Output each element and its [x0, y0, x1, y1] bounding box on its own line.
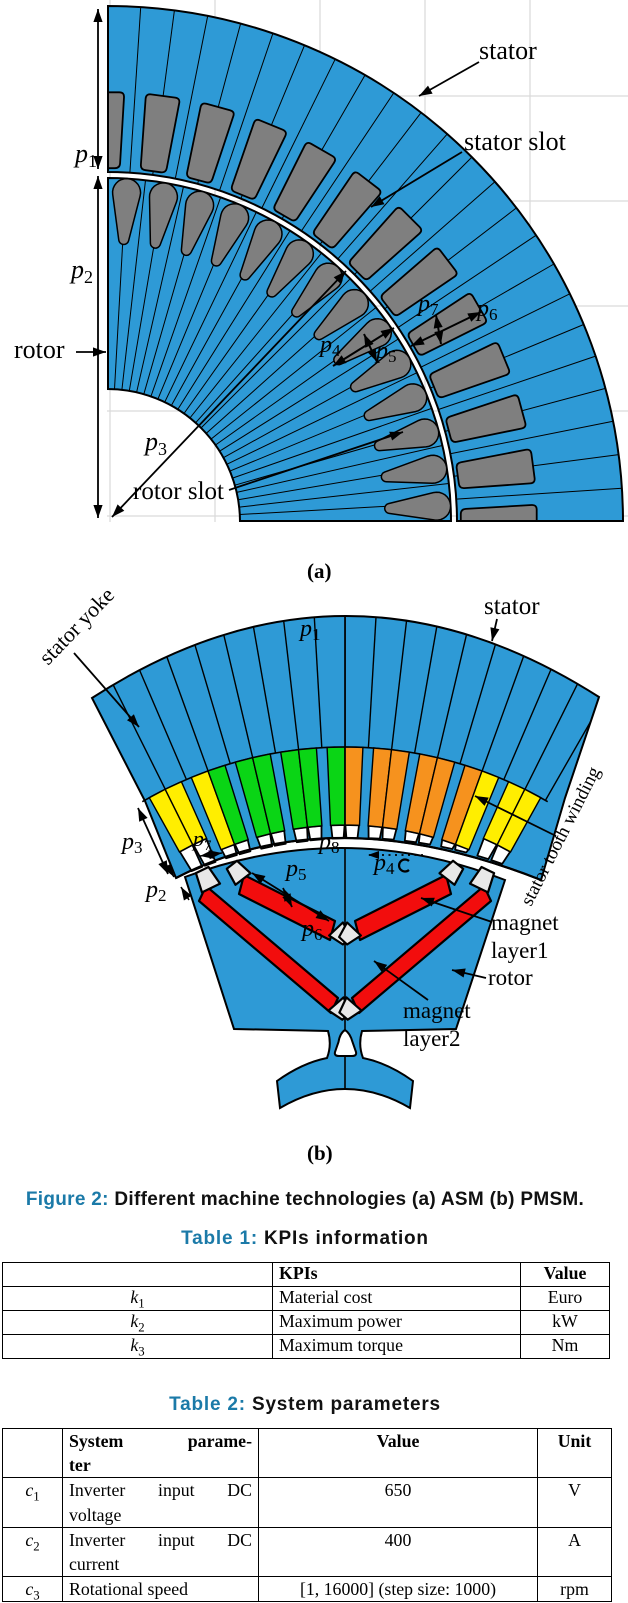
svg-text:(a): (a): [307, 559, 332, 583]
svg-text:p3: p3: [120, 829, 143, 857]
svg-text:rotor: rotor: [14, 335, 65, 364]
svg-text:stator: stator: [484, 593, 540, 620]
svg-text:p2: p2: [144, 877, 167, 905]
svg-text:rotor: rotor: [488, 965, 533, 990]
svg-text:magnet: magnet: [491, 910, 559, 935]
svg-text:p1: p1: [73, 139, 97, 171]
svg-text:stator: stator: [479, 36, 537, 65]
svg-text:layer2: layer2: [403, 1026, 460, 1051]
svg-text:rotor slot: rotor slot: [133, 478, 224, 505]
svg-text:layer1: layer1: [491, 938, 548, 963]
svg-text:(b): (b): [307, 1141, 333, 1165]
svg-text:p3: p3: [143, 427, 167, 459]
svg-text:stator slot: stator slot: [464, 127, 567, 156]
svg-text:p2: p2: [69, 255, 93, 287]
svg-text:magnet: magnet: [403, 998, 471, 1023]
